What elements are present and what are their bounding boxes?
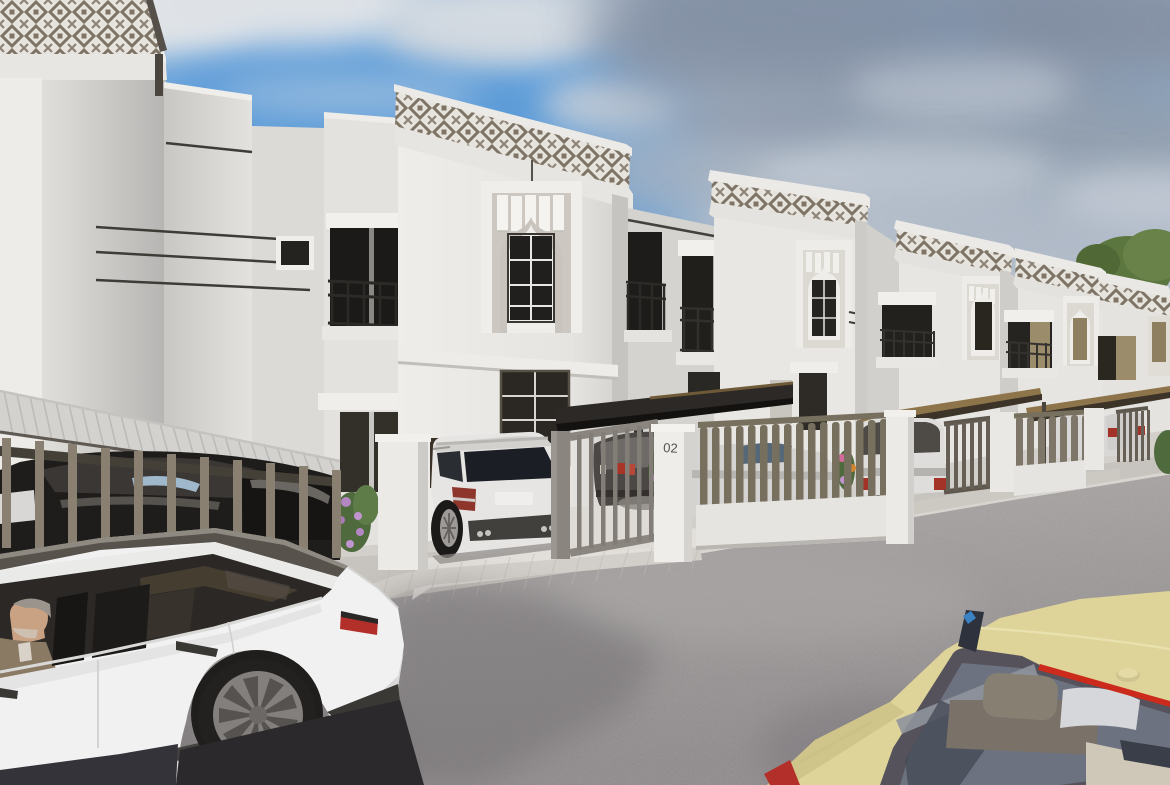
svg-text:02: 02	[663, 440, 678, 456]
